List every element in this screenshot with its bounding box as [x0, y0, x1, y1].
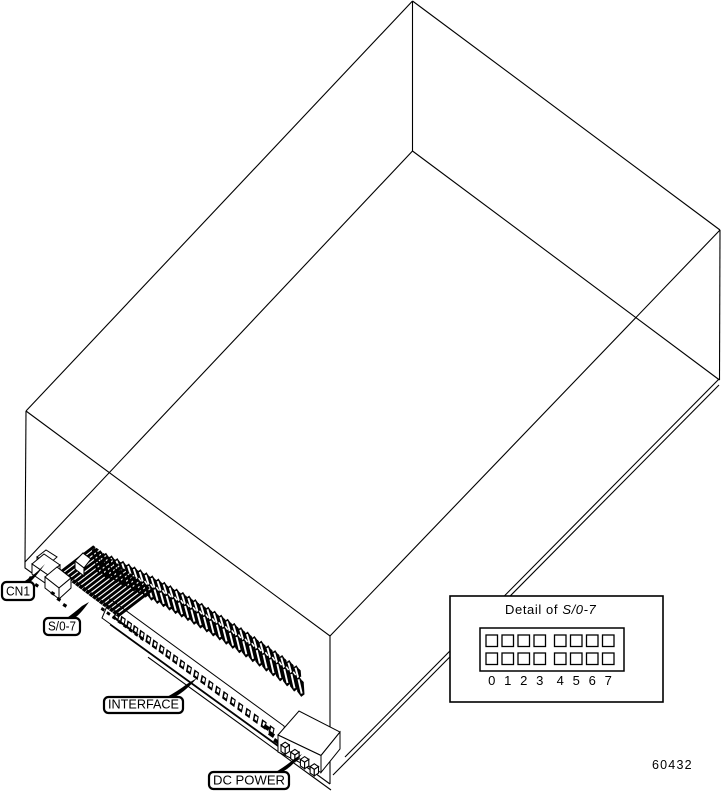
svg-text:7: 7	[605, 673, 612, 688]
svg-text:5: 5	[573, 673, 580, 688]
svg-text:2: 2	[520, 673, 527, 688]
svg-text:6: 6	[589, 673, 596, 688]
svg-text:Detail of S/0-7: Detail of S/0-7	[505, 602, 597, 617]
svg-text:0: 0	[488, 673, 495, 688]
svg-text:4: 4	[557, 673, 564, 688]
svg-text:3: 3	[536, 673, 543, 688]
svg-text:DC POWER: DC POWER	[213, 773, 285, 788]
svg-text:CN1: CN1	[6, 584, 30, 599]
svg-text:S/0-7: S/0-7	[48, 619, 76, 634]
svg-text:1: 1	[504, 673, 511, 688]
svg-text:INTERFACE: INTERFACE	[108, 697, 179, 712]
svg-text:60432: 60432	[652, 758, 693, 772]
